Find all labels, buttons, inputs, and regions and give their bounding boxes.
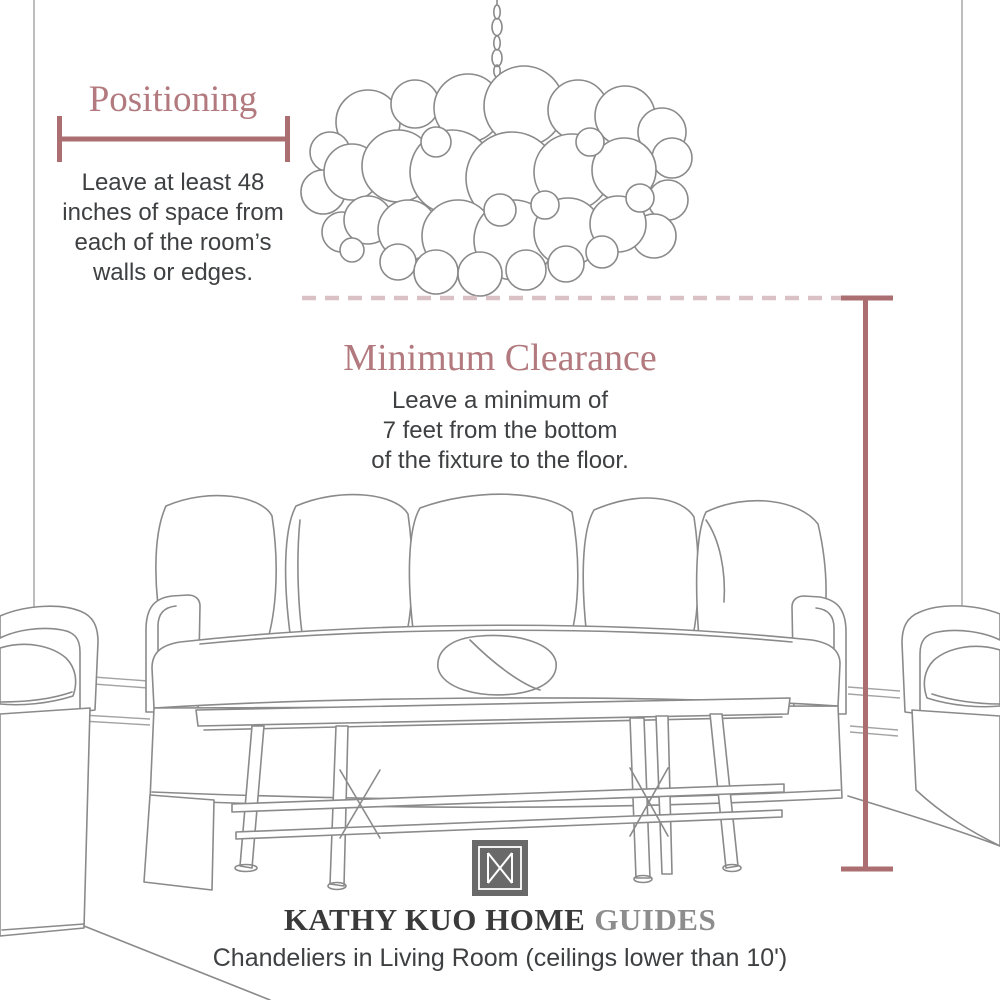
brand-wordmark: KATHY KUO HOMEGUIDES: [0, 902, 1000, 938]
positioning-line: each of the room’s: [30, 228, 316, 258]
positioning-line: inches of space from: [30, 198, 316, 228]
clearance-line: of the fixture to the floor.: [300, 446, 700, 476]
brand-name: KATHY KUO HOME: [284, 902, 586, 937]
clearance-line: Leave a minimum of: [300, 386, 700, 416]
kkh-monogram-icon: [472, 840, 528, 896]
chandelier-bubbles: [301, 66, 692, 296]
positioning-title: Positioning: [40, 78, 306, 121]
clearance-line: 7 feet from the bottom: [300, 416, 700, 446]
positioning-description: Leave at least 48 inches of space from e…: [30, 168, 316, 288]
right-armchair-illustration: [902, 606, 1000, 846]
guide-caption: Chandeliers in Living Room (ceilings low…: [0, 944, 1000, 973]
infographic-canvas: Positioning Leave at least 48 inches of …: [0, 0, 1000, 1000]
positioning-line: walls or edges.: [30, 258, 316, 288]
bubble-chandelier-illustration: [301, 0, 692, 296]
clearance-title: Minimum Clearance: [250, 336, 750, 380]
clearance-description: Leave a minimum of 7 feet from the botto…: [300, 386, 700, 476]
clearance-measure-line: [841, 298, 893, 869]
chandelier-chain: [492, 0, 502, 77]
brand-suffix: GUIDES: [594, 902, 716, 937]
positioning-measure-line: [57, 116, 290, 162]
positioning-line: Leave at least 48: [30, 168, 316, 198]
kathy-kuo-home-logo: [472, 840, 528, 896]
